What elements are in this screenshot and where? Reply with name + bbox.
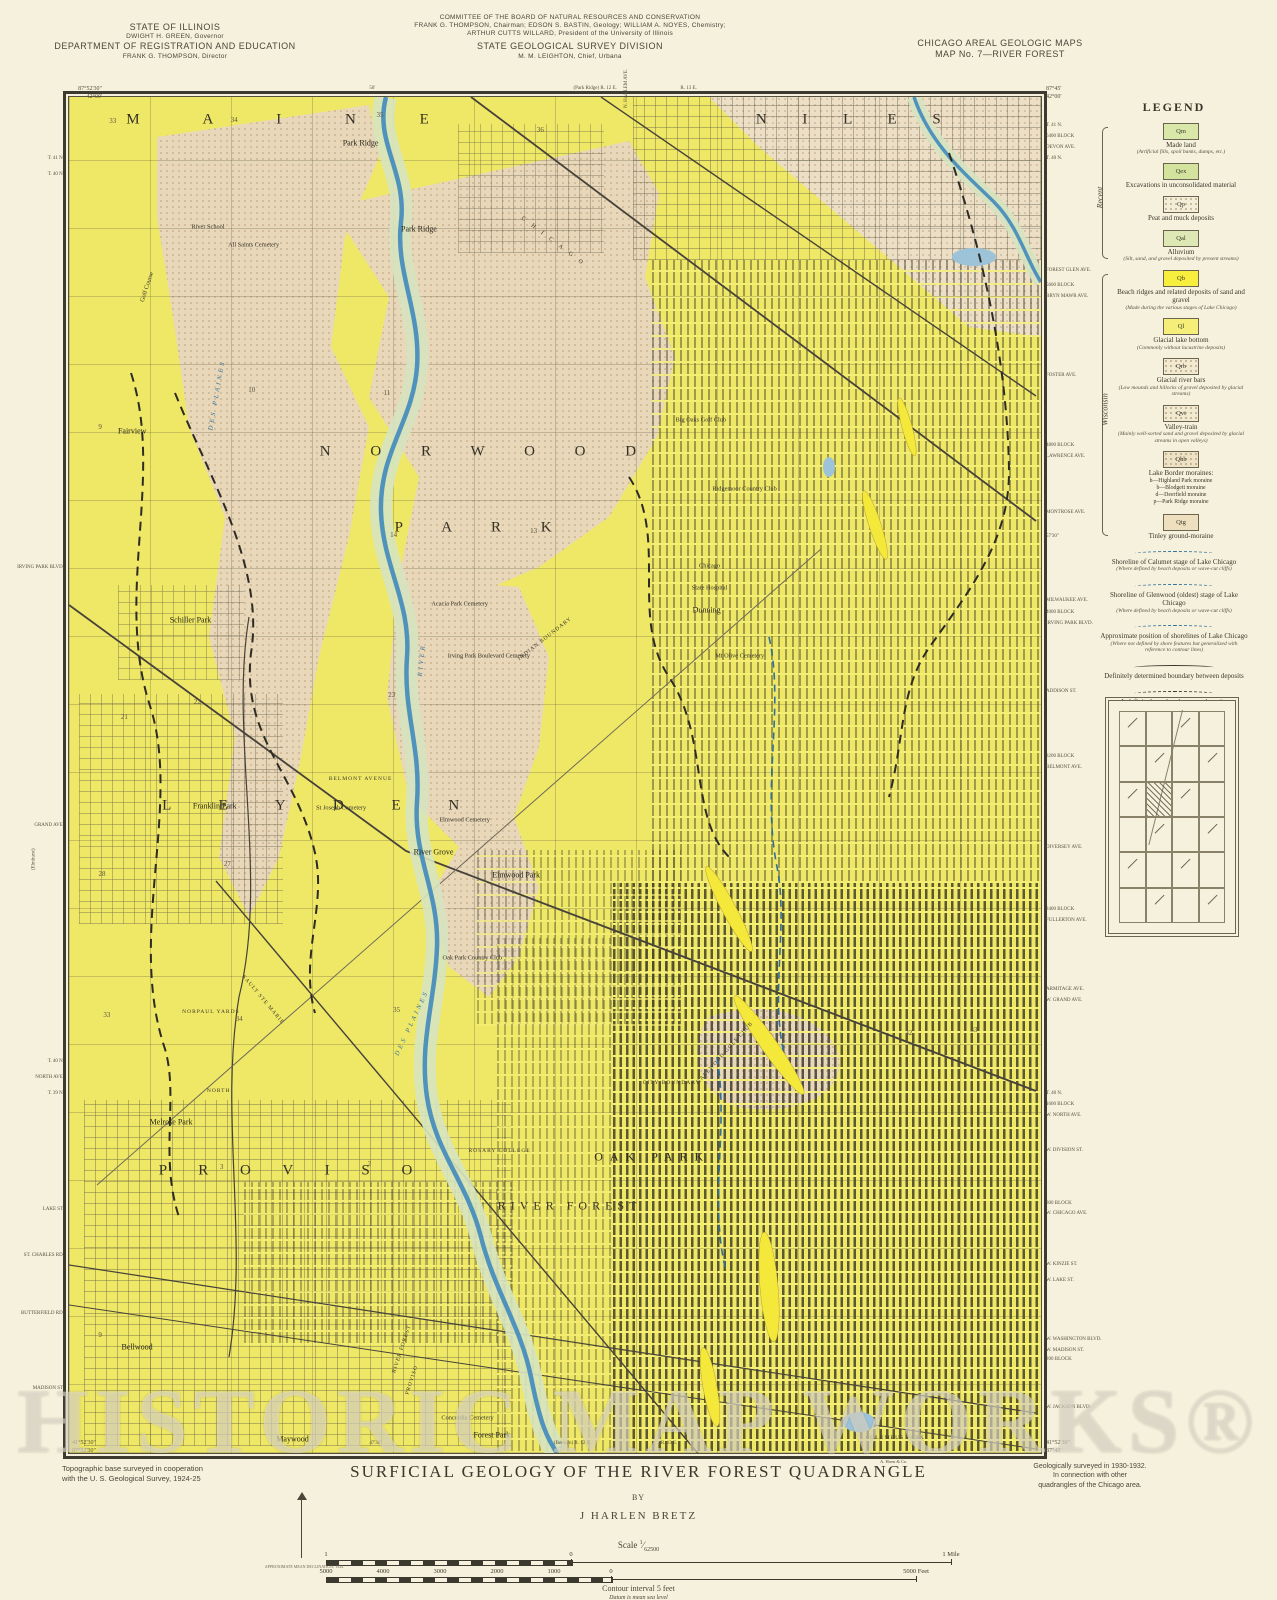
- legend-item-note: (Made during the various stages of Lake …: [1114, 305, 1248, 312]
- map-label: Fairview: [118, 426, 146, 435]
- inset-cell: [1199, 782, 1226, 817]
- margin-label: W. KINZIE ST.: [1046, 1262, 1077, 1267]
- map-label: Schiller Park: [170, 616, 212, 625]
- map-label: 9: [98, 1331, 102, 1339]
- margin-label: MADISON ST.: [4, 1386, 64, 1391]
- map-label: Park Ridge: [401, 224, 437, 233]
- margin-label: 4000 BLOCK: [1046, 610, 1074, 615]
- legend-item-label: Glacial river bars: [1114, 376, 1248, 384]
- state-title: STATE OF ILLINOIS: [40, 22, 310, 33]
- map-label: St Joseph Cemetery: [316, 804, 366, 811]
- margin-label: T. 40 N.: [4, 172, 64, 177]
- legend-item-label: Approximate position of shorelines of La…: [1100, 632, 1248, 640]
- map-label: Elmwood Cemetery: [439, 816, 490, 823]
- margin-label: W. LAKE ST.: [1046, 1278, 1074, 1283]
- legend-item: QalAlluvium(Silt, sand, and gravel depos…: [1114, 230, 1248, 263]
- contour-note: Contour interval 5 feet: [0, 1584, 1277, 1593]
- legend-item-note: (Where not defined by shore features but…: [1100, 641, 1248, 654]
- map-canvas: M A I N EN I L E SN O R W O O DP A R KL …: [68, 96, 1042, 1454]
- map-label: 13: [530, 527, 537, 535]
- map-label: P A R K: [395, 520, 570, 537]
- legend-line-item: Approximate position of shorelines of La…: [1100, 621, 1248, 654]
- legend-line-item: Shoreline of Calumet stage of Lake Chica…: [1100, 547, 1248, 573]
- inset-cell: [1146, 817, 1173, 852]
- map-label: Mt Olive Cemetery: [715, 652, 764, 659]
- scale-bar-feet: 5000400030002000100005000 Feet: [326, 1577, 916, 1581]
- margin-label: 2400 BLOCK: [1046, 907, 1074, 912]
- inset-cell-river-forest: [1146, 782, 1173, 817]
- legend-item: QmMade land(Artificial fills, spoil bank…: [1114, 123, 1248, 156]
- map-label: 35: [393, 1006, 400, 1014]
- margin-label: 4800 BLOCK: [1046, 443, 1074, 448]
- legend-item: QhbLake Border moraines:h—Highland Park …: [1114, 451, 1248, 506]
- legend-item: QexExcavations in unconsolidated materia…: [1114, 163, 1248, 189]
- legend-item-label: Shoreline of Glenwood (oldest) stage of …: [1100, 591, 1248, 608]
- legend-item: QtgTinley ground-moraine: [1114, 514, 1248, 540]
- coord-bottom-right: 41°52'30"87°45': [1046, 1440, 1070, 1456]
- scale-bar-miles: 101 Mile: [326, 1560, 951, 1564]
- map-label: NORTH: [207, 1088, 231, 1094]
- legend-group-wisconsin: WisconsinQbBeach ridges and related depo…: [1100, 270, 1248, 540]
- map-label: Park Ridge: [343, 139, 379, 148]
- margin-label: W. CHICAGO AVE.: [1046, 1211, 1087, 1216]
- map-label: 32: [905, 1029, 912, 1037]
- inset-cell: [1172, 746, 1199, 781]
- inset-cell: [1146, 711, 1173, 746]
- inset-cell: [1119, 782, 1146, 817]
- margin-label: BELMONT AVE.: [1046, 765, 1082, 770]
- margin-label: T. 40 N.: [1046, 1091, 1062, 1096]
- margin-label: BRYN MAWR AVE.: [1046, 294, 1088, 299]
- legend-item-label: Peat and muck deposits: [1114, 214, 1248, 222]
- map-label: Oak Park Country Club: [443, 955, 503, 962]
- des-plaines-river: [381, 97, 557, 1453]
- boundary-symbol: [1134, 665, 1214, 670]
- map-label: 9: [98, 423, 102, 431]
- margin-label: 3200 BLOCK: [1046, 754, 1074, 759]
- map-label: OAK PARK: [594, 1150, 710, 1165]
- map-label: 11: [383, 389, 390, 397]
- margin-label: ST. CHARLES RD.: [4, 1253, 64, 1258]
- map-label: Ridgemoor Country Club: [712, 485, 776, 492]
- inset-cell: [1119, 711, 1146, 746]
- legend-item: QvtValley-train(Mainly well-sorted sand …: [1114, 405, 1248, 445]
- margin-label: W. GRAND AVE.: [1046, 998, 1082, 1003]
- legend-item-note: (Silt, sand, and gravel deposited by pre…: [1114, 256, 1248, 263]
- inset-cell: [1146, 888, 1173, 923]
- inset-cell: [1172, 852, 1199, 887]
- map-label: State Hospital: [692, 584, 728, 591]
- map-title: SURFICIAL GEOLOGY OF THE RIVER FOREST QU…: [0, 1462, 1277, 1482]
- legend-swatch: Qb: [1163, 270, 1199, 287]
- margin-label: GRAND AVE.: [4, 823, 64, 828]
- margin-label: W. WASHINGTON BLVD.: [1046, 1337, 1102, 1342]
- map-label: Franklin Park: [193, 802, 237, 811]
- legend-item-label: Alluvium: [1114, 248, 1248, 256]
- margin-label: FOSTER AVE.: [1046, 373, 1076, 378]
- scale-tick-label: 1000: [548, 1568, 561, 1575]
- declination-arrow: APPROXIMATE MEAN DECLINATION, 1924: [292, 1492, 312, 1562]
- margin-label: IRVING PARK BLVD.: [1046, 621, 1093, 626]
- margin-label: 1600 BLOCK: [1046, 1102, 1074, 1107]
- map-label: CITY BOUNDARY: [643, 1080, 701, 1086]
- scale-text: Scale 1⁄62500: [0, 1540, 1277, 1553]
- scale-tick-label: 0: [569, 1551, 572, 1558]
- map-label: BELMONT AVENUE: [329, 776, 392, 782]
- legend-item-label: Glacial lake bottom: [1114, 336, 1248, 344]
- map-label: COLUMBUS PARK: [866, 1435, 925, 1441]
- scale-tick-label: 5000: [320, 1568, 333, 1575]
- margin-label: 200 BLOCK: [1046, 1357, 1072, 1362]
- map-label: 16: [948, 1393, 955, 1401]
- margin-label: W. JACKSON BLVD.: [1046, 1405, 1091, 1410]
- legend-item-note: (Artificial fills, spoil banks, dumps, e…: [1114, 149, 1248, 156]
- scale-tick-label: 0: [609, 1568, 612, 1575]
- map-label: Forest Park: [473, 1431, 510, 1440]
- inset-cell: [1146, 852, 1173, 887]
- inset-cell: [1172, 782, 1199, 817]
- margin-label: 5600 BLOCK: [1046, 283, 1074, 288]
- margin-label: BUTTERFIELD RD.: [4, 1311, 64, 1316]
- map-label: M A I N E: [126, 112, 459, 129]
- legend-swatch: Qrb: [1163, 358, 1199, 375]
- author: J HARLEN BRETZ: [0, 1510, 1277, 1522]
- inset-cell: [1172, 817, 1199, 852]
- legend-item: QpPeat and muck deposits: [1114, 196, 1248, 222]
- inset-cell: [1199, 817, 1226, 852]
- margin-label: LAKE ST.: [4, 1207, 64, 1212]
- legend-group-recent: RecentQmMade land(Artificial fills, spoi…: [1100, 123, 1248, 263]
- map-label: 21: [121, 713, 128, 721]
- scale-tick-label: 1 Mile: [942, 1551, 959, 1558]
- map-label: 34: [236, 1015, 243, 1023]
- map-number: MAP No. 7—RIVER FOREST: [870, 49, 1130, 60]
- legend-sub-item: h—Highland Park moraine: [1114, 478, 1248, 485]
- margin-label: MILWAUKEE AVE.: [1046, 598, 1088, 603]
- map-label: 2: [368, 1160, 372, 1168]
- beach-ridges: [696, 397, 919, 1428]
- margin-label: NORTH AVE.: [4, 1075, 64, 1080]
- inset-cell: [1199, 888, 1226, 923]
- map-label: 23: [388, 691, 395, 699]
- geologic-boundaries: [131, 153, 1009, 1217]
- map-label: 3: [220, 1163, 224, 1171]
- map-label: Acacia Park Cemetery: [431, 601, 488, 608]
- margin-label: (Elmhurst): [32, 848, 37, 908]
- legend-sub-item: p—Park Ridge moraine: [1114, 499, 1248, 506]
- margin-label: LAWRENCE AVE.: [1046, 454, 1085, 459]
- margin-label: ADDISON ST.: [1046, 689, 1076, 694]
- legend-line-item: Definitely determined boundary between d…: [1100, 661, 1248, 680]
- map-label: All Saints Cemetery: [228, 241, 279, 248]
- map-label: 28: [99, 870, 106, 878]
- margin-label: (Berwyn) R. 12 E.: [554, 1441, 591, 1446]
- scale-tick-label: 2000: [491, 1568, 504, 1575]
- map-label: 33: [103, 1011, 110, 1019]
- coord-bottom-left: 41°52'30"87°52'30": [36, 1440, 96, 1456]
- margin-label: T. 41 N.: [1046, 123, 1062, 128]
- margin-label: T. 39 N.: [4, 1091, 64, 1096]
- map-label: N O R W O O D: [320, 444, 654, 461]
- map-label: Melrose Park: [150, 1118, 193, 1127]
- boundary-symbol: [1134, 691, 1214, 696]
- map-label: 22: [194, 698, 201, 706]
- inset-cell: [1199, 852, 1226, 887]
- inset-cell: [1199, 711, 1226, 746]
- legend-item-label: Tinley ground-moraine: [1114, 532, 1248, 540]
- coord-top-left: 87°52'30"42°00': [42, 86, 102, 102]
- map-label: Chicago: [699, 563, 720, 570]
- legend-item-note: (Where defined by beach deposits or wave…: [1100, 566, 1248, 573]
- map-sheet: STATE OF ILLINOIS DWIGHT H. GREEN, Gover…: [0, 0, 1277, 1600]
- inset-cell: [1119, 888, 1146, 923]
- legend-item-label: Valley-train: [1114, 423, 1248, 431]
- map-label: 33: [970, 1026, 977, 1034]
- map-label: RIVER FOREST: [498, 1199, 642, 1214]
- margin-label: 57'30": [1046, 534, 1059, 539]
- shoreline-symbol: [1134, 551, 1214, 556]
- legend-swatch: Qhb: [1163, 451, 1199, 468]
- map-label: Concordia Cemetery: [441, 1414, 493, 1421]
- legend-swatch: Ql: [1163, 318, 1199, 335]
- map-label: Bellwood: [121, 1343, 152, 1352]
- map-label: Dunning: [693, 605, 721, 614]
- margin-label: T. 40 N.: [1046, 156, 1062, 161]
- map-label: Elmwood Park: [492, 871, 540, 880]
- margin-label: W. MADISON ST.: [1046, 1348, 1084, 1353]
- line-layer: [69, 97, 1041, 1453]
- margin-label: 6400 BLOCK: [1046, 134, 1074, 139]
- legend-sub-item: d—Deerfield moraine: [1114, 492, 1248, 499]
- inset-cell: [1172, 888, 1199, 923]
- margin-label: R. 13 E.: [661, 1441, 677, 1446]
- legend-item-note: (Low mounds and hillocks of gravel depos…: [1114, 385, 1248, 398]
- scale-tick-label: 5000 Feet: [903, 1568, 929, 1575]
- inset-cell: [1119, 746, 1146, 781]
- map-label: 34: [231, 116, 238, 124]
- map-label: 33: [109, 117, 116, 125]
- survey-division-title: STATE GEOLOGICAL SURVEY DIVISION: [360, 41, 780, 52]
- margin-label: ARMITAGE AVE.: [1046, 987, 1084, 992]
- legend: LEGEND RecentQmMade land(Artificial fill…: [1100, 100, 1248, 757]
- inset-cell: [1119, 817, 1146, 852]
- margin-label: N. HARLEM AVE.: [624, 69, 629, 108]
- legend-item: QbBeach ridges and related deposits of s…: [1114, 270, 1248, 311]
- index-map-inset: [1108, 700, 1236, 934]
- inset-cell: [1119, 852, 1146, 887]
- legend-group-name: Wisconsin: [1101, 393, 1110, 425]
- legend-group-name: Recent: [1095, 186, 1104, 208]
- map-label: Big Oaks Golf Club: [676, 416, 727, 423]
- map-label: 27: [224, 860, 231, 868]
- legend-item-label: Definitely determined boundary between d…: [1100, 672, 1248, 680]
- margin-label: FOREST GLEN AVE.: [1046, 268, 1091, 273]
- map-label: ROSARY COLLEGE: [468, 1148, 530, 1154]
- legend-swatch: Qp: [1163, 196, 1199, 213]
- legend-item: QlGlacial lake bottom(Commonly without l…: [1114, 318, 1248, 351]
- scale-tick-label: 1: [324, 1551, 327, 1558]
- header-committee: COMMITTEE OF THE BOARD OF NATURAL RESOUR…: [360, 14, 780, 61]
- margin-label: IRVING PARK BLVD.: [4, 565, 64, 570]
- map-label: P R O V I S O: [159, 1162, 427, 1179]
- margin-label: (Park Ridge) R. 12 E.: [573, 86, 616, 91]
- legend-item-label: Beach ridges and related deposits of san…: [1114, 288, 1248, 305]
- map-label: 14: [390, 531, 397, 539]
- margin-label: DEVON AVE.: [1046, 145, 1075, 150]
- legend-swatch: Qvt: [1163, 405, 1199, 422]
- byline: BY: [0, 1493, 1277, 1502]
- legend-line-item: Shoreline of Glenwood (oldest) stage of …: [1100, 580, 1248, 614]
- map-label: NORPAUL YARDS: [182, 1009, 239, 1015]
- margin-label: 47'30": [369, 1441, 382, 1446]
- margin-label: T. 41 N.: [4, 156, 64, 161]
- legend-swatch: Qex: [1163, 163, 1199, 180]
- legend-item-note: (Commonly without lacustrine deposits): [1114, 345, 1248, 352]
- legend-item: QrbGlacial river bars(Low mounds and hil…: [1114, 358, 1248, 398]
- header-agency: STATE OF ILLINOIS DWIGHT H. GREEN, Gover…: [40, 22, 310, 61]
- legend-item-label: Excavations in unconsolidated material: [1114, 181, 1248, 189]
- margin-label: W. DIVISION ST.: [1046, 1148, 1083, 1153]
- legend-swatch: Qal: [1163, 230, 1199, 247]
- railroads: [69, 97, 1036, 1453]
- legend-item-note: (Mainly well-sorted sand and gravel depo…: [1114, 431, 1248, 444]
- margin-label: DIVERSEY AVE.: [1046, 845, 1082, 850]
- datum-note: Datum is mean sea level: [0, 1595, 1277, 1600]
- inset-grid: [1119, 711, 1225, 923]
- margin-label: FULLERTON AVE.: [1046, 918, 1087, 923]
- margin-label: T. 40 N.: [4, 1059, 64, 1064]
- header-series: CHICAGO AREAL GEOLOGIC MAPS MAP No. 7—RI…: [870, 38, 1130, 61]
- margin-label: W. NORTH AVE.: [1046, 1113, 1082, 1118]
- lake-chicago-shorelines: [717, 637, 785, 1267]
- inset-cell: [1172, 711, 1199, 746]
- legend-swatch: Qtg: [1163, 514, 1199, 531]
- map-label: N I L E S: [756, 112, 957, 129]
- map-label: 35: [377, 111, 384, 119]
- chicago-river-north-branch: [823, 97, 1041, 1432]
- map-label: River School: [191, 224, 224, 231]
- scale-tick-label: 3000: [434, 1568, 447, 1575]
- map-label: River Grove: [414, 848, 454, 857]
- shoreline-symbol: [1134, 584, 1214, 589]
- margin-label: 800 BLOCK: [1046, 1201, 1072, 1206]
- map-label: 36: [537, 126, 544, 134]
- margin-label: R. 13 E.: [680, 86, 696, 91]
- legend-item-note: (Where defined by beach deposits or wave…: [1100, 608, 1248, 615]
- margin-label: MONTROSE AVE.: [1046, 510, 1085, 515]
- inset-cell: [1146, 746, 1173, 781]
- columbus-park-lagoon: [843, 1412, 875, 1432]
- legend-title: LEGEND: [1100, 100, 1248, 115]
- margin-label: 50': [369, 86, 375, 91]
- map-label: Maywood: [276, 1435, 308, 1444]
- coord-top-right: 87°45'42°00': [1046, 86, 1061, 102]
- legend-swatch: Qm: [1163, 123, 1199, 140]
- scale-tick-label: 4000: [377, 1568, 390, 1575]
- inset-cell: [1199, 746, 1226, 781]
- shoreline-symbol: [1134, 625, 1214, 630]
- legend-item-label: Lake Border moraines:: [1114, 469, 1248, 477]
- map-label: 10: [248, 386, 255, 394]
